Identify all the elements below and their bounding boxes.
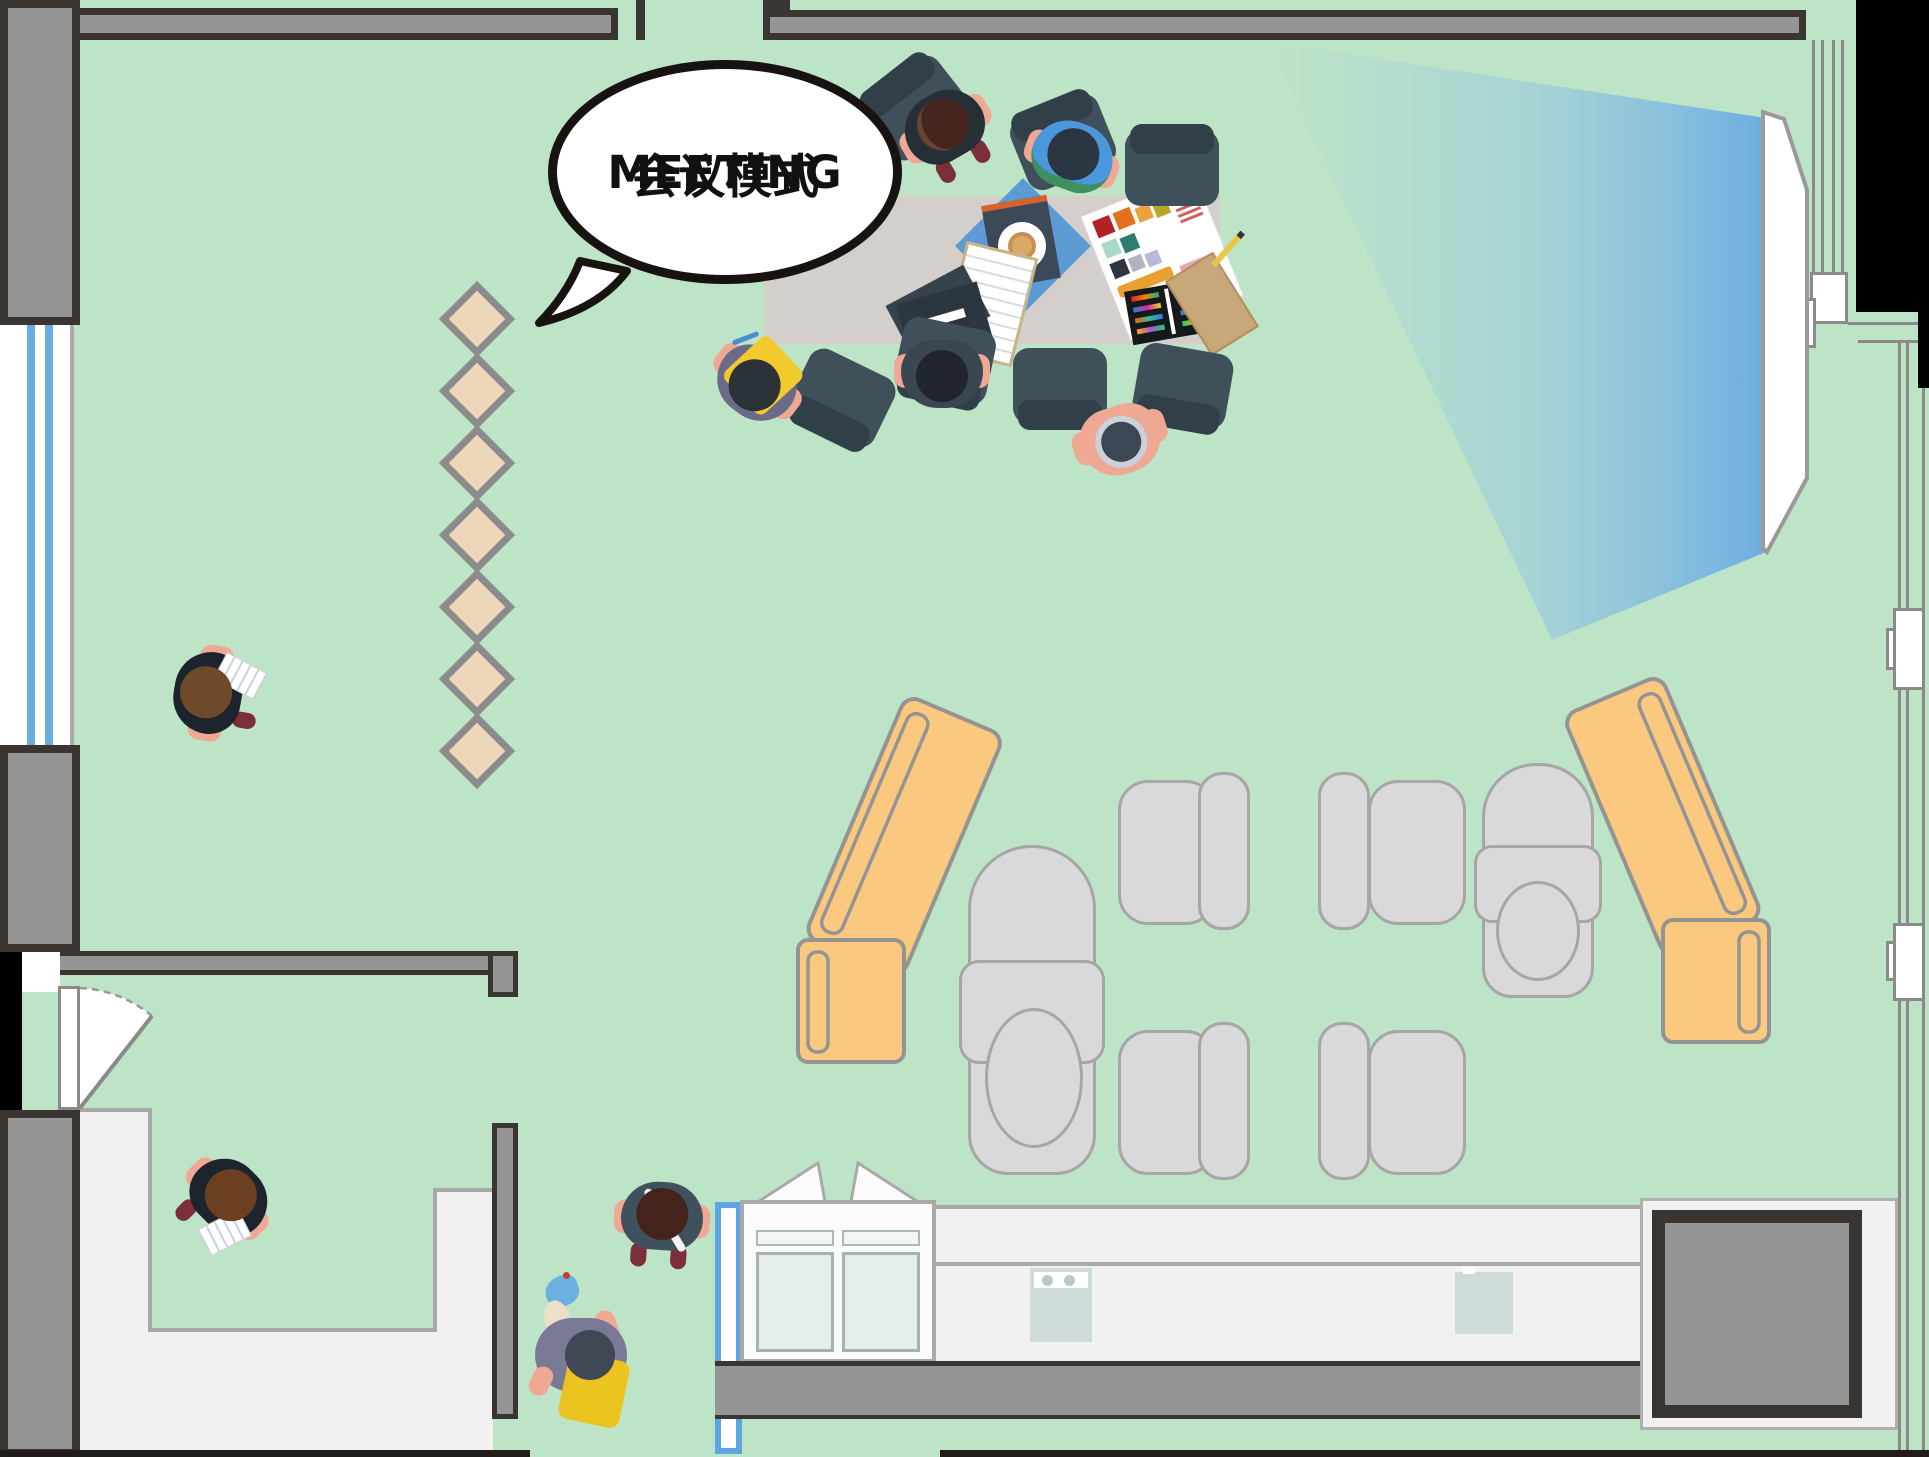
window-glass-line	[45, 325, 53, 745]
wall-line	[1898, 340, 1901, 1457]
interior-wall-corner	[488, 951, 518, 997]
wall-line	[1821, 40, 1824, 276]
wall-line	[1922, 340, 1925, 1457]
bubble-text-zh: 会议模式	[631, 138, 819, 207]
kitchen-cabinet	[740, 1200, 936, 1363]
door-opening-gap	[0, 952, 22, 1110]
person-lower-left	[162, 1132, 294, 1264]
pillar-bottom-left	[0, 1110, 80, 1457]
pillar-top-left	[0, 0, 80, 325]
floor-margin-edge	[433, 1188, 437, 1332]
door-jamb	[636, 0, 645, 40]
speech-bubble: MEETING 会议模式	[548, 60, 902, 284]
window-frame-tab	[1886, 628, 1896, 670]
floor-tile	[439, 569, 515, 645]
projector-beam	[1240, 30, 1780, 650]
door-leaf	[58, 986, 80, 1110]
utility-block	[1652, 1210, 1862, 1418]
armchair-seat	[1368, 1030, 1466, 1175]
window-left	[0, 325, 74, 745]
floor-tile	[439, 425, 515, 501]
armchair-back	[1318, 1022, 1370, 1180]
person-left	[155, 640, 265, 745]
armchair-back	[1318, 772, 1370, 930]
wall-step-line	[1848, 322, 1929, 325]
pillar-mid-left	[0, 745, 80, 952]
window-frame-right	[1893, 923, 1925, 1001]
sofa-right	[1527, 640, 1807, 1060]
floor-plan: MEETING 会议模式	[0, 0, 1929, 1457]
interior-wall-vertical	[492, 1123, 518, 1419]
wall-line	[1841, 40, 1844, 276]
wall-top-left	[55, 8, 618, 40]
wall-top-right	[763, 10, 1806, 40]
projector-screen	[1750, 100, 1820, 560]
appliance	[1455, 1272, 1513, 1334]
floor-tile	[439, 497, 515, 573]
armchair-back	[1198, 1022, 1250, 1180]
wall-line	[1906, 340, 1909, 1457]
stove	[1030, 1268, 1092, 1342]
window-frame-right	[1893, 608, 1925, 690]
window-frame-tab	[1886, 941, 1896, 981]
floor-tile	[439, 281, 515, 357]
bottom-edge-line	[0, 1450, 530, 1457]
interior-wall-horizontal	[55, 951, 518, 975]
armchair-seat	[1368, 780, 1466, 925]
bending-head	[565, 1330, 615, 1380]
floor-margin-right	[433, 1188, 493, 1457]
person-bending	[525, 1270, 635, 1420]
sofa-left	[780, 660, 1060, 1080]
wall-line	[1832, 40, 1835, 276]
floor-tile	[439, 353, 515, 429]
chair	[1125, 130, 1219, 206]
bottom-wall-band	[715, 1361, 1647, 1419]
floor-tile	[439, 713, 515, 789]
person-bottom-walking	[614, 1167, 710, 1269]
person-meeting-4	[897, 324, 987, 420]
window-edge	[70, 325, 74, 745]
bottom-edge-line	[940, 1450, 1929, 1457]
dark-corner-top-right	[1856, 0, 1929, 312]
floor-margin-edge	[148, 1328, 437, 1332]
floor-margin-edge	[433, 1188, 493, 1192]
floor-margin-bottom	[78, 1328, 493, 1457]
floor-margin-edge	[148, 1108, 152, 1332]
window-glass-line	[27, 325, 35, 745]
armchair-back	[1198, 772, 1250, 930]
dark-corner-step	[1918, 312, 1929, 388]
floor-tile	[439, 641, 515, 717]
counter-divider	[936, 1262, 1647, 1266]
